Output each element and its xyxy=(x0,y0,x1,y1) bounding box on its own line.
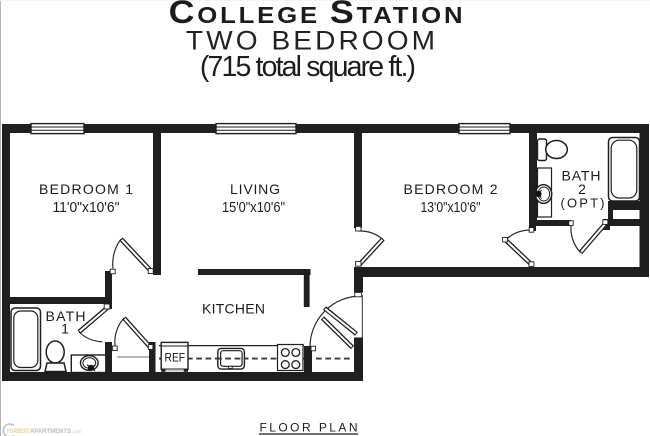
svg-text:REF: REF xyxy=(165,351,186,365)
svg-text:1: 1 xyxy=(61,321,69,337)
svg-text:FLOOR PLAN: FLOOR PLAN xyxy=(260,421,358,435)
svg-text:15'0"x10'6": 15'0"x10'6" xyxy=(222,200,285,216)
svg-text:(OPT): (OPT) xyxy=(561,196,605,211)
svg-text:LIVING: LIVING xyxy=(230,181,280,197)
svg-text:11'0"x10'6": 11'0"x10'6" xyxy=(53,200,120,216)
svg-text:FORRENT: FORRENT xyxy=(7,428,30,435)
svg-text:KITCHEN: KITCHEN xyxy=(202,301,265,317)
svg-text:(715 total square ft.): (715 total square ft.) xyxy=(200,51,415,83)
svg-text:APARTMENTS: APARTMENTS xyxy=(30,428,71,435)
svg-text:13'0"x10'6": 13'0"x10'6" xyxy=(421,200,481,216)
svg-text:.com: .com xyxy=(72,429,82,434)
